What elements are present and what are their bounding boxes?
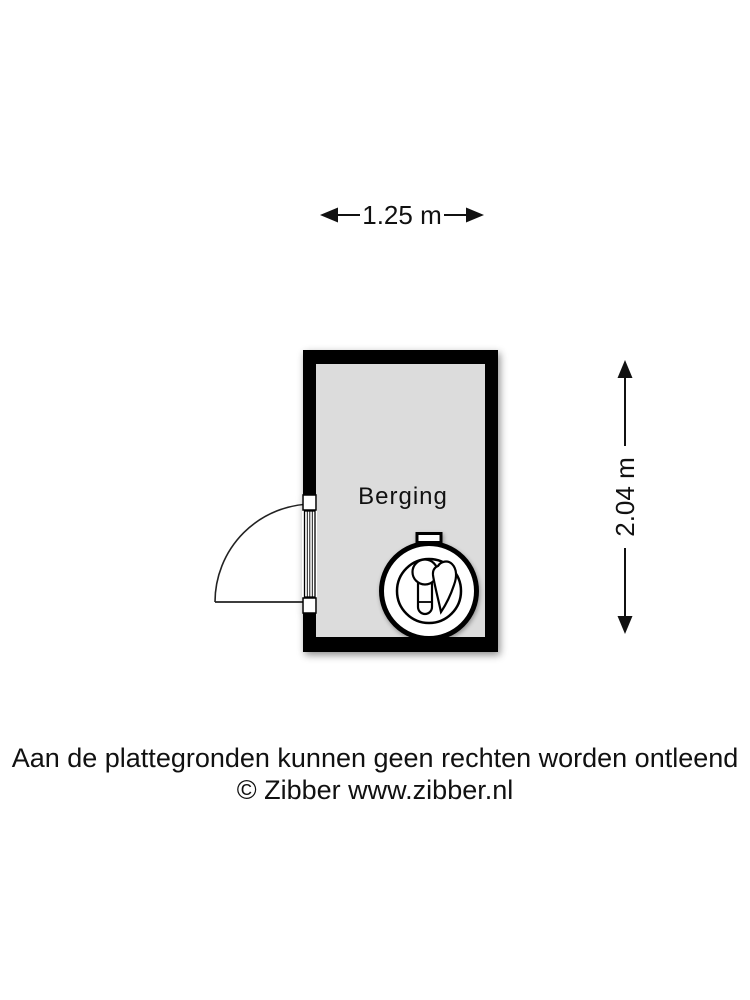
door-frame-post — [303, 598, 316, 613]
door-swing-icon — [215, 495, 316, 613]
dimension-height: 2.04 m — [610, 360, 640, 634]
floorplan-page: 1.25 m Berging — [0, 0, 750, 1000]
arrow-left-icon — [320, 208, 338, 223]
dimension-width-label: 1.25 m — [362, 200, 442, 230]
door-arc — [215, 504, 313, 602]
floorplan-drawing: 1.25 m Berging — [0, 0, 750, 1000]
door-frame-post — [303, 495, 316, 510]
room-label: Berging — [358, 483, 448, 510]
arrow-down-icon — [618, 616, 633, 634]
footer-disclaimer: Aan de plattegronden kunnen geen rechten… — [0, 742, 750, 774]
arrow-right-icon — [466, 208, 484, 223]
dimension-width: 1.25 m — [320, 200, 484, 230]
dimension-height-label: 2.04 m — [610, 457, 640, 537]
arrow-up-icon — [618, 360, 633, 378]
footer-copyright: © Zibber www.zibber.nl — [0, 774, 750, 806]
footer: Aan de plattegronden kunnen geen rechten… — [0, 742, 750, 806]
